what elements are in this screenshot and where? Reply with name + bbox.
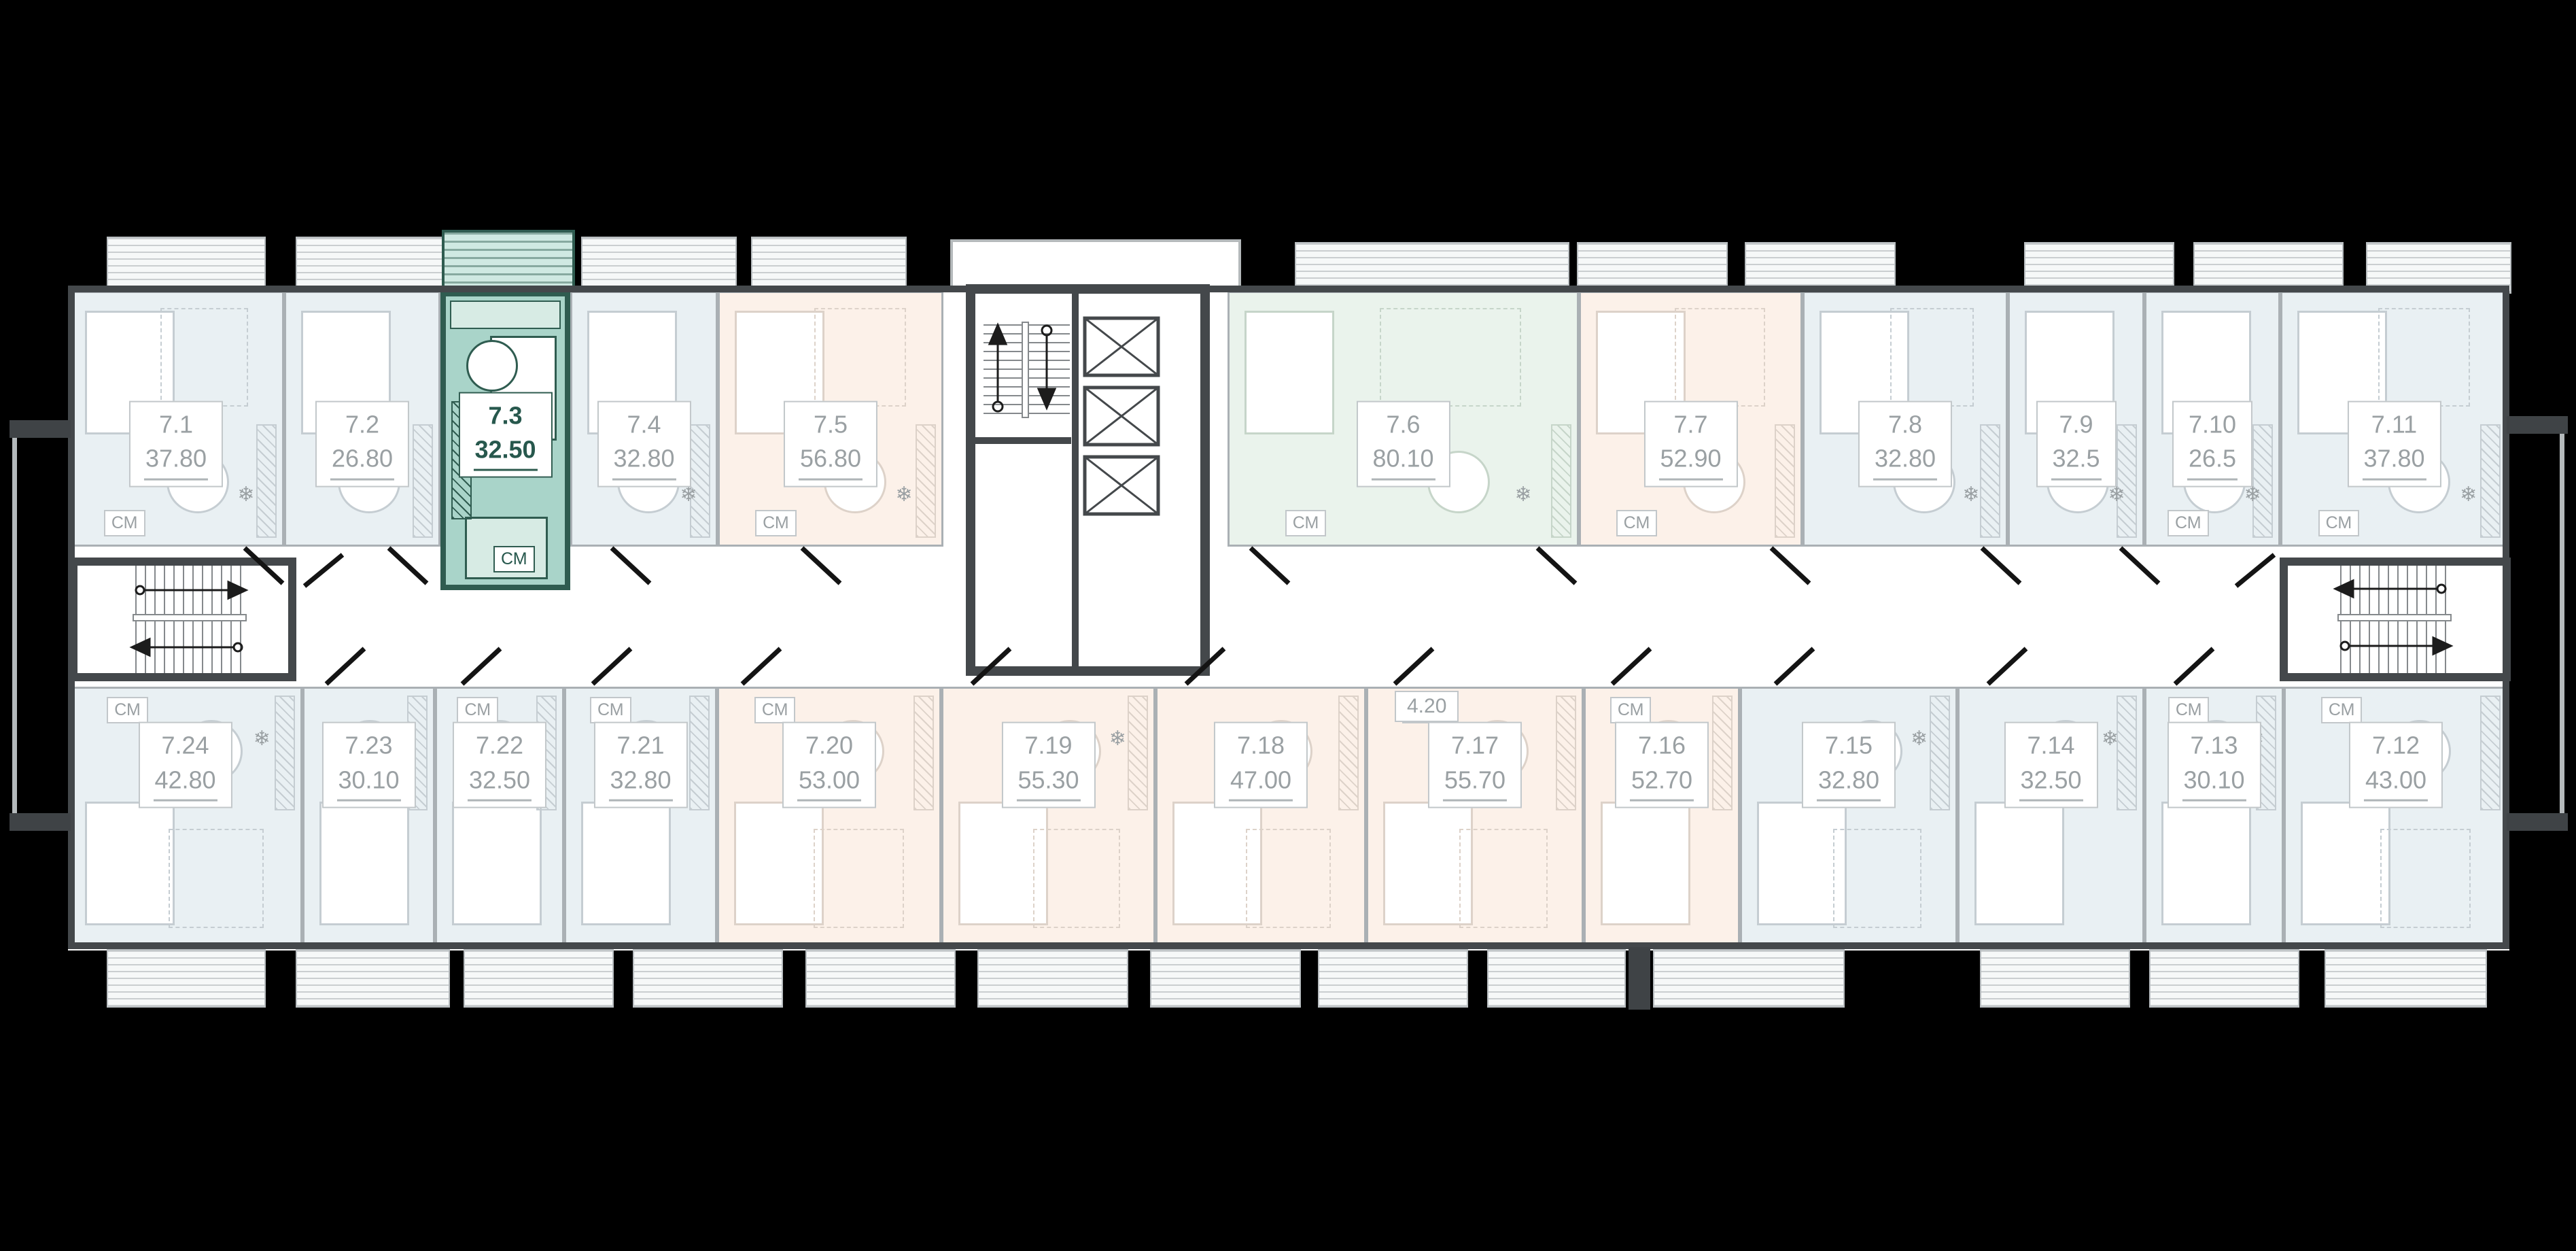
wardrobe-furniture	[2117, 696, 2137, 810]
rug-outline	[814, 829, 905, 928]
fridge-icon: ❄	[1514, 483, 1531, 507]
rug-outline	[1833, 829, 1921, 928]
apartment-label: 7.832.80	[1858, 401, 1952, 487]
room-area-label: 4.20	[1395, 691, 1459, 722]
rug-outline	[814, 308, 905, 407]
apartment-label: 7.1432.50	[2004, 722, 2098, 808]
apartment-unit-7.3[interactable]: СМ❄7.332.50	[440, 291, 570, 590]
apartment-unit-7.17[interactable]: СМ7.1755.70	[1366, 687, 1584, 945]
apartment-area: 55.30	[1016, 763, 1080, 801]
apartment-unit-7.22[interactable]: СМ❄7.2232.50	[435, 687, 564, 945]
apartment-unit-7.11[interactable]: СМ❄7.1137.80	[2280, 291, 2508, 547]
apartment-area: 80.10	[1371, 442, 1435, 480]
apartment-label: 7.1652.70	[1615, 722, 1709, 808]
rug-outline	[1380, 308, 1521, 407]
apartment-number: 7.20	[797, 729, 861, 763]
washing-machine-label: СМ	[1610, 697, 1652, 723]
apartment-label: 7.932.5	[2036, 401, 2116, 487]
rug-outline	[2380, 829, 2471, 928]
rug-outline	[1033, 829, 1120, 928]
bed-furniture	[2161, 802, 2251, 925]
bed-furniture	[1601, 802, 1690, 925]
apartment-area: 32.80	[1817, 763, 1881, 801]
washing-machine-label: СМ	[457, 697, 498, 723]
apartment-area: 32.50	[473, 433, 537, 471]
bed-furniture	[452, 802, 542, 925]
apartment-label: 7.556.80	[784, 401, 877, 487]
fridge-icon: ❄	[1109, 727, 1126, 751]
apartment-label: 7.432.80	[597, 401, 691, 487]
wardrobe-furniture	[413, 424, 433, 538]
fridge-icon: ❄	[2460, 483, 2477, 507]
apartment-unit-7.8[interactable]: ❄7.832.80	[1803, 291, 2008, 547]
washing-machine-label: СМ	[754, 697, 796, 723]
apartment-label: 7.1955.30	[1001, 722, 1095, 808]
apartment-label: 7.1137.80	[2347, 401, 2441, 487]
apartment-unit-7.4[interactable]: ❄7.432.80	[570, 291, 718, 547]
apartment-number: 7.22	[468, 729, 532, 763]
apartment-number: 7.17	[1443, 729, 1507, 763]
apartment-unit-7.12[interactable]: СМ7.1243.00	[2284, 687, 2508, 945]
apartment-area: 43.00	[2364, 763, 2428, 801]
apartment-area: 32.80	[608, 763, 672, 801]
apartment-area: 26.5	[2187, 442, 2238, 480]
apartment-area: 26.80	[330, 442, 394, 480]
rug-outline	[160, 308, 248, 407]
apartment-unit-7.6[interactable]: СМ❄7.680.10	[1228, 291, 1579, 547]
apartment-area: 37.80	[2362, 442, 2426, 480]
apartment-unit-7.10[interactable]: СМ❄7.1026.5	[2144, 291, 2280, 547]
apartment-number: 7.8	[1873, 408, 1937, 442]
apartment-number: 7.1	[144, 408, 208, 442]
apartment-label: 7.1755.70	[1428, 722, 1522, 808]
washing-machine-label: СМ	[2318, 510, 2360, 536]
wardrobe-furniture	[1338, 696, 1359, 810]
apartment-area: 32.50	[2019, 763, 2083, 801]
washing-machine-label: СМ	[755, 510, 797, 536]
washing-machine-label: СМ	[2168, 697, 2210, 723]
apartment-unit-7.7[interactable]: СМ7.752.90	[1579, 291, 1803, 547]
wardrobe-furniture	[1556, 696, 1576, 810]
apartment-label: 7.2132.80	[593, 722, 687, 808]
apartment-label: 7.1243.00	[2349, 722, 2443, 808]
rug-outline	[169, 829, 264, 928]
apartment-area: 32.80	[612, 442, 676, 480]
apartment-label: 7.2442.80	[138, 722, 232, 808]
apartment-number: 7.24	[153, 729, 217, 763]
bed-furniture	[319, 802, 409, 925]
bed-furniture	[85, 802, 175, 925]
bed-furniture	[734, 802, 824, 925]
apartment-unit-7.24[interactable]: СМ❄7.2442.80	[68, 687, 302, 945]
rug-outline	[2378, 308, 2471, 407]
bed-furniture	[1245, 311, 1334, 434]
fridge-icon: ❄	[1962, 483, 1979, 507]
apartment-unit-7.18[interactable]: 7.1847.00	[1155, 687, 1366, 945]
apartment-label: 7.752.90	[1643, 401, 1737, 487]
apartment-label: 7.332.50	[458, 392, 552, 478]
apartment-number: 7.13	[2182, 729, 2246, 763]
wardrobe-furniture	[2252, 424, 2273, 538]
wardrobe-furniture	[256, 424, 277, 538]
wardrobe-furniture	[690, 424, 710, 538]
wardrobe-furniture	[275, 696, 295, 810]
washing-machine-label: СМ	[1616, 510, 1658, 536]
apartment-number: 7.12	[2364, 729, 2428, 763]
apartment-label: 7.680.10	[1356, 401, 1450, 487]
apartment-unit-7.13[interactable]: СМ❄7.1330.10	[2144, 687, 2284, 945]
kitchen-counter	[450, 301, 561, 329]
apartment-number: 7.3	[473, 398, 537, 432]
apartment-label: 7.2330.10	[321, 722, 415, 808]
rug-outline	[1459, 829, 1548, 928]
apartment-number: 7.15	[1817, 729, 1881, 763]
apartment-area: 56.80	[799, 442, 863, 480]
wardrobe-furniture	[916, 424, 936, 538]
apartment-area: 32.80	[1873, 442, 1937, 480]
bed-furniture	[581, 802, 671, 925]
wardrobe-furniture	[2117, 424, 2137, 538]
apartment-label: 7.1330.10	[2167, 722, 2261, 808]
apartment-number: 7.5	[799, 408, 863, 442]
wardrobe-furniture	[2480, 696, 2501, 810]
washing-machine-label: СМ	[590, 697, 631, 723]
apartment-unit-7.2[interactable]: 7.226.80	[284, 291, 440, 547]
apartment-number: 7.14	[2019, 729, 2083, 763]
wardrobe-furniture	[1930, 696, 1950, 810]
apartment-area: 37.80	[144, 442, 208, 480]
apartment-number: 7.11	[2362, 408, 2426, 442]
washing-machine-label: СМ	[107, 697, 148, 723]
apartment-area: 32.5	[2051, 442, 2101, 480]
apartment-unit-7.16[interactable]: СМ7.1652.70	[1584, 687, 1740, 945]
apartment-area: 52.70	[1630, 763, 1694, 801]
apartment-unit-7.20[interactable]: СМ7.2053.00	[717, 687, 941, 945]
apartment-area: 30.10	[2182, 763, 2246, 801]
apartment-unit-7.14[interactable]: ❄7.1432.50	[1957, 687, 2144, 945]
apartment-area: 30.10	[336, 763, 400, 801]
table-furniture	[466, 340, 518, 392]
fridge-icon: ❄	[2102, 727, 2119, 751]
apartment-number: 7.23	[336, 729, 400, 763]
apartment-number: 7.10	[2187, 408, 2238, 442]
wardrobe-furniture	[913, 696, 934, 810]
wardrobe-furniture	[1775, 424, 1795, 538]
bed-furniture	[2301, 802, 2390, 925]
apartment-label: 7.1847.00	[1214, 722, 1308, 808]
apartment-unit-7.19[interactable]: ❄7.1955.30	[941, 687, 1155, 945]
washing-machine-label: СМ	[104, 510, 145, 536]
apartment-label: 7.137.80	[129, 401, 223, 487]
apartment-number: 7.18	[1229, 729, 1293, 763]
wardrobe-furniture	[2480, 424, 2501, 538]
washing-machine-label: СМ	[2168, 510, 2209, 536]
apartment-label: 7.2232.50	[453, 722, 546, 808]
apartment-number: 7.9	[2051, 408, 2101, 442]
apartment-number: 7.19	[1016, 729, 1080, 763]
fridge-icon: ❄	[1911, 727, 1928, 751]
apartment-unit-7.1[interactable]: СМ❄7.137.80	[68, 291, 284, 547]
bed-furniture	[1974, 802, 2064, 925]
washing-machine-label: СМ	[493, 546, 535, 572]
apartment-unit-7.15[interactable]: ❄7.1532.80	[1740, 687, 1957, 945]
apartment-number: 7.16	[1630, 729, 1694, 763]
floor-plan-stage: СМ❄7.137.807.226.80СМ❄7.332.50❄7.432.80С…	[0, 0, 2576, 1251]
rug-outline	[1890, 308, 1973, 407]
apartment-label: 7.1532.80	[1802, 722, 1896, 808]
apartment-unit-7.21[interactable]: СМ7.2132.80	[564, 687, 717, 945]
wardrobe-furniture	[1551, 424, 1571, 538]
washing-machine-label: СМ	[2321, 697, 2363, 723]
washing-machine-label: СМ	[1285, 510, 1327, 536]
apartment-unit-7.23[interactable]: ❄7.2330.10	[302, 687, 435, 945]
apartment-area: 42.80	[153, 763, 217, 801]
apartment-label: 7.226.80	[315, 401, 409, 487]
apartment-area: 55.70	[1443, 763, 1507, 801]
wardrobe-furniture	[1128, 696, 1148, 810]
apartment-area: 52.90	[1658, 442, 1722, 480]
apartment-number: 7.6	[1371, 408, 1435, 442]
apartment-label: 7.1026.5	[2172, 401, 2252, 487]
apartment-number: 7.4	[612, 408, 676, 442]
wardrobe-furniture	[1712, 696, 1733, 810]
apartment-area: 47.00	[1229, 763, 1293, 801]
fridge-icon: ❄	[237, 483, 254, 507]
apartment-unit-7.9[interactable]: ❄7.932.5	[2008, 291, 2144, 547]
apartment-label: 7.2053.00	[782, 722, 876, 808]
wardrobe-furniture	[689, 696, 710, 810]
rug-outline	[1675, 308, 1765, 407]
apartment-number: 7.2	[330, 408, 394, 442]
apartment-area: 53.00	[797, 763, 861, 801]
apartment-number: 7.21	[608, 729, 672, 763]
apartment-unit-7.5[interactable]: СМ❄7.556.80	[718, 291, 943, 547]
apartment-number: 7.7	[1658, 408, 1722, 442]
fridge-icon: ❄	[895, 483, 912, 507]
wardrobe-furniture	[1980, 424, 2000, 538]
apartments-layer: СМ❄7.137.807.226.80СМ❄7.332.50❄7.432.80С…	[0, 0, 2576, 1251]
fridge-icon: ❄	[254, 727, 271, 751]
apartment-area: 32.50	[468, 763, 532, 801]
rug-outline	[1246, 829, 1331, 928]
